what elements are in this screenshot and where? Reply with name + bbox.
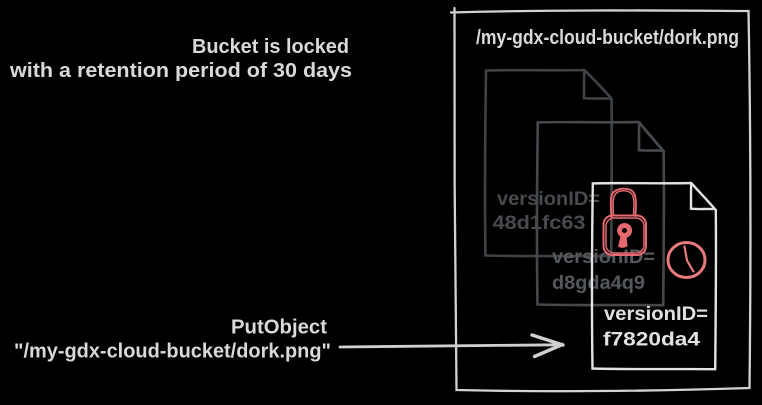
svg-text:versionID=: versionID= (497, 189, 600, 210)
svg-text:f7820da4: f7820da4 (603, 330, 701, 351)
svg-text:48d1fc63: 48d1fc63 (493, 213, 586, 234)
svg-text:d8gda4q9: d8gda4q9 (552, 273, 645, 294)
svg-text:versionID=: versionID= (604, 304, 708, 325)
svg-text:/my-gdx-cloud-bucket/dork.png: /my-gdx-cloud-bucket/dork.png (476, 26, 739, 49)
svg-text:with a retention period of 30: with a retention period of 30 days (9, 59, 352, 82)
svg-text:PutObject: PutObject (231, 316, 327, 339)
svg-text:Bucket is locked: Bucket is locked (192, 35, 349, 58)
svg-text:"/my-gdx-cloud-bucket/dork.png: "/my-gdx-cloud-bucket/dork.png" (14, 340, 331, 363)
